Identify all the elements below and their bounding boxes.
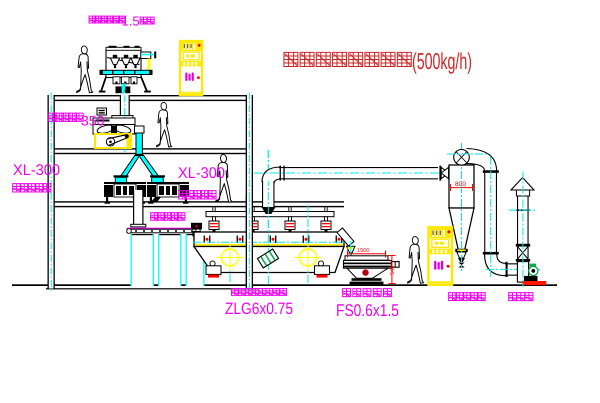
svg-text:540: 540	[390, 266, 396, 275]
svg-text:800: 800	[455, 181, 466, 188]
svg-text:XL-300: XL-300	[178, 165, 225, 182]
svg-text:ZLG6x0.75: ZLG6x0.75	[225, 300, 293, 318]
svg-text:XL-300: XL-300	[13, 162, 60, 179]
svg-text:FS0.6x1.5: FS0.6x1.5	[336, 301, 399, 320]
svg-text:(500kg/h): (500kg/h)	[412, 48, 472, 74]
svg-text:1500: 1500	[357, 248, 369, 254]
svg-text:350: 350	[81, 113, 105, 129]
svg-text:1.5: 1.5	[122, 14, 140, 29]
